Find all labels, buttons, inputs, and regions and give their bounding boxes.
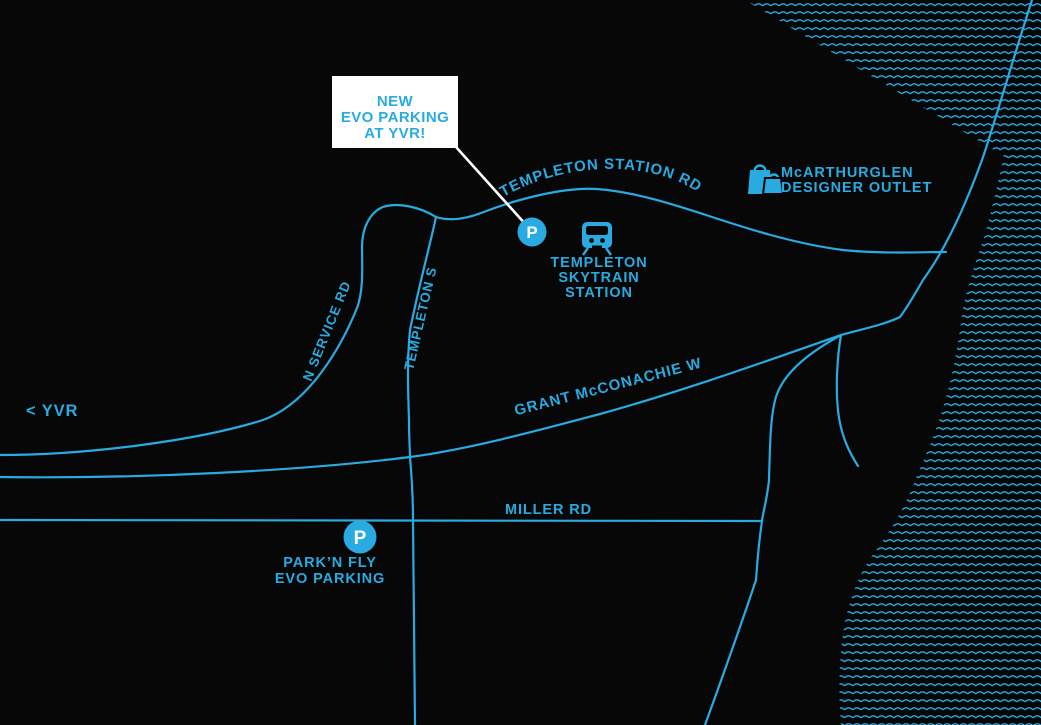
outlet-label-line2: DESIGNER OUTLET [781,180,932,196]
callout-line-new: NEW [377,93,414,110]
skytrain-label-line3: STATION [565,285,633,301]
parknfly-label-line1: PARK’N FLY [283,555,377,571]
callout-line-evo-parking: EVO PARKING [341,109,449,126]
parking-marker-letter: P [354,528,367,549]
grant-mcconachie-way-label: GRANT McCONACHIE WAY [0,0,704,419]
map-canvas: NEW EVO PARKING AT YVR! P TEMPLETON SKYT… [0,0,1041,725]
miller-rd-label: MILLER RD [505,502,592,518]
yvr-direction-label: < YVR [26,402,78,420]
shopping-bags-icon [748,166,783,195]
skytrain-label-line1: TEMPLETON [550,255,647,271]
parking-marker-letter: P [526,223,537,242]
road-shore-spur [837,335,858,466]
callout-line-at-yvr: AT YVR! [364,125,425,142]
train-icon [582,222,612,255]
templeton-st-label: TEMPLETON ST [0,0,440,372]
road-miller-rd [0,520,762,521]
skytrain-label-line2: SKYTRAIN [558,270,639,286]
evo-parking-map: NEW EVO PARKING AT YVR! P TEMPLETON SKYT… [0,0,1041,725]
road-grant-mcconachie-way [0,335,841,477]
templeton-station-rd-label: TEMPLETON STATION RD [497,156,705,201]
outlet-label-line1: McARTHURGLEN [781,165,913,181]
water-area [745,0,1041,725]
parknfly-marker: P [344,521,377,554]
new-parking-marker: P [518,218,547,247]
road-n-service-loop [0,189,946,455]
road-south-branch [705,335,841,725]
parknfly-label-line2: EVO PARKING [275,571,385,587]
